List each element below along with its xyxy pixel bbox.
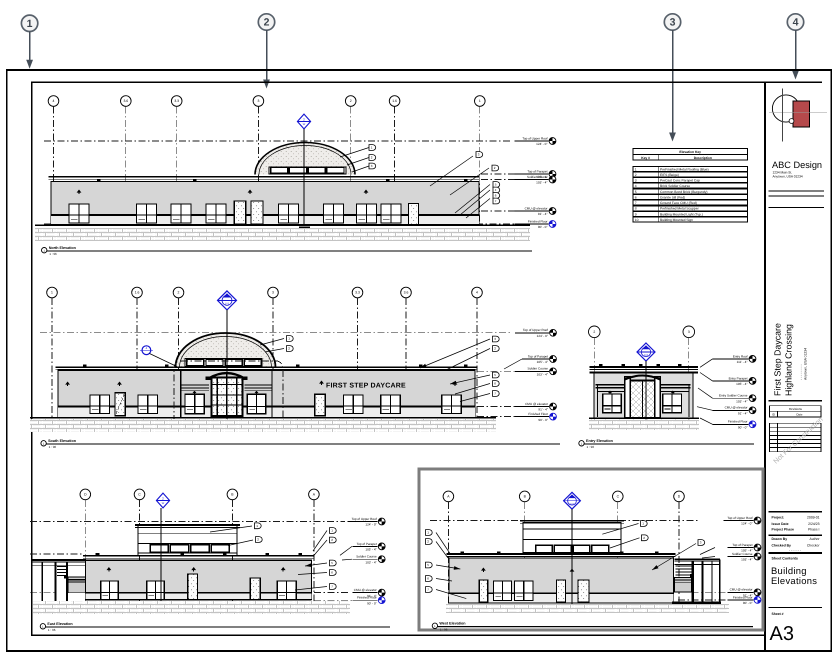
svg-text:CMU @ elevator: CMU @ elevator xyxy=(730,588,753,592)
svg-text:Sheet #: Sheet # xyxy=(772,612,784,616)
svg-text:Prefinished Metal Scupper: Prefinished Metal Scupper xyxy=(660,207,700,211)
svg-text:4: 4 xyxy=(793,17,799,29)
svg-text:1: 1 xyxy=(27,18,33,30)
svg-text:103' - 4": 103' - 4" xyxy=(536,181,547,185)
svg-text:90' - 0": 90' - 0" xyxy=(743,601,753,605)
svg-text:4: 4 xyxy=(476,291,478,295)
svg-text:Key #: Key # xyxy=(641,156,650,160)
svg-text:102: 102 xyxy=(570,503,575,506)
svg-text:5: 5 xyxy=(635,190,637,194)
svg-text:Anytown, USA 01234: Anytown, USA 01234 xyxy=(804,348,808,380)
svg-text:Highland Crossing: Highland Crossing xyxy=(784,324,794,396)
svg-text:Checker: Checker xyxy=(807,543,820,547)
svg-text:90' - 0": 90' - 0" xyxy=(538,418,548,422)
svg-text:105' - 4": 105' - 4" xyxy=(537,360,548,364)
svg-text:111' - 4": 111' - 4" xyxy=(737,360,748,364)
svg-text:PreFinished Metal Roofing (Blu: PreFinished Metal Roofing (Blue) xyxy=(660,167,709,171)
svg-text:91' - 4": 91' - 4" xyxy=(538,212,548,216)
svg-text:Top of Upper Roof: Top of Upper Roof xyxy=(727,516,752,520)
svg-text:Top of Parapet: Top of Parapet xyxy=(528,354,548,358)
svg-text:PreCast Conc Parapet Cap: PreCast Conc Parapet Cap xyxy=(660,179,700,183)
svg-text:1: 1 xyxy=(51,291,53,295)
svg-text:ABC Design: ABC Design xyxy=(772,160,822,170)
svg-text:1 : 96: 1 : 96 xyxy=(49,252,57,256)
svg-text:103' - 4": 103' - 4" xyxy=(741,558,752,562)
svg-text:124' - 0": 124' - 0" xyxy=(741,522,752,526)
svg-text:Project:: Project: xyxy=(772,515,785,519)
svg-text:3.6: 3.6 xyxy=(404,291,409,295)
svg-text:2: 2 xyxy=(264,17,270,29)
svg-text:2: 2 xyxy=(593,330,595,334)
svg-text:Building Mounted Sign: Building Mounted Sign xyxy=(660,218,693,222)
svg-text:West Elevation: West Elevation xyxy=(439,622,466,626)
svg-text:90' - 0": 90' - 0" xyxy=(738,426,748,430)
svg-text:90' - 0": 90' - 0" xyxy=(367,601,377,605)
svg-text:Entry Elevation: Entry Elevation xyxy=(586,439,614,443)
svg-text:Building Mounted Light (Typ.): Building Mounted Light (Typ.) xyxy=(660,212,703,216)
svg-text:Anytown, USA 01234: Anytown, USA 01234 xyxy=(773,175,803,179)
svg-text:1 : 96: 1 : 96 xyxy=(48,628,56,632)
svg-text:102: 102 xyxy=(644,354,649,357)
svg-text:3.3: 3.3 xyxy=(174,99,179,103)
svg-text:4: 4 xyxy=(53,99,55,103)
svg-text:124' - 0": 124' - 0" xyxy=(365,523,376,527)
svg-text:103' - 4": 103' - 4" xyxy=(365,560,376,564)
svg-text:Elevations: Elevations xyxy=(771,575,817,586)
svg-text:First Step Daycare: First Step Daycare xyxy=(773,323,783,396)
svg-text:Soldier Course: Soldier Course xyxy=(527,175,548,179)
svg-text:102: 102 xyxy=(225,303,230,306)
svg-text:Phase I: Phase I xyxy=(808,528,820,532)
svg-text:Project Phase: Project Phase xyxy=(772,528,795,532)
svg-text:Ground Face CMU (Red): Ground Face CMU (Red) xyxy=(660,201,697,205)
svg-text:9: 9 xyxy=(635,212,637,216)
svg-text:Issue Date: Issue Date xyxy=(772,522,789,526)
svg-text:Entry Roof: Entry Roof xyxy=(733,354,748,358)
svg-text:CMU @ elevator: CMU @ elevator xyxy=(354,588,377,592)
svg-text:Soldier Course: Soldier Course xyxy=(528,367,549,371)
svg-text:CMU @ elevator: CMU @ elevator xyxy=(525,402,548,406)
svg-text:1 : 96: 1 : 96 xyxy=(587,445,595,449)
svg-text:2: 2 xyxy=(178,291,180,295)
svg-text:Top of Upper Roof: Top of Upper Roof xyxy=(352,517,377,521)
svg-text:3: 3 xyxy=(272,291,274,295)
svg-text:91' - 4": 91' - 4" xyxy=(738,412,748,416)
svg-text:105' - 4": 105' - 4" xyxy=(736,382,747,386)
svg-text:Finished Floor: Finished Floor xyxy=(528,412,548,416)
svg-text:6: 6 xyxy=(635,195,637,199)
svg-text:Sheet Contents: Sheet Contents xyxy=(772,557,798,561)
svg-text:7: 7 xyxy=(635,201,637,205)
svg-text:103' - 4": 103' - 4" xyxy=(537,373,548,377)
svg-text:2009-01: 2009-01 xyxy=(807,515,820,519)
svg-text:Description: Description xyxy=(694,156,712,160)
svg-text:3.3: 3.3 xyxy=(355,291,360,295)
svg-text:124' - 0": 124' - 0" xyxy=(536,142,547,146)
svg-text:Entry Parapet: Entry Parapet xyxy=(729,376,748,380)
svg-text:10: 10 xyxy=(635,218,639,222)
svg-text:1.6: 1.6 xyxy=(392,99,397,103)
svg-text:East Elevation: East Elevation xyxy=(47,622,73,626)
svg-text:Finished Floor: Finished Floor xyxy=(357,596,377,600)
svg-text:Soldier Course: Soldier Course xyxy=(732,552,753,556)
svg-text:- - - - - - -: - - - - - - - xyxy=(789,548,801,552)
svg-text:CMU @ elevator: CMU @ elevator xyxy=(725,406,748,410)
svg-text:3: 3 xyxy=(257,99,259,103)
svg-text:Checked By: Checked By xyxy=(772,543,792,547)
svg-text:Top of Upper Roof: Top of Upper Roof xyxy=(522,136,547,140)
svg-text:Author: Author xyxy=(810,537,821,541)
svg-text:2: 2 xyxy=(635,173,637,177)
svg-text:Revisions: Revisions xyxy=(789,407,803,411)
svg-text:4: 4 xyxy=(635,184,637,188)
svg-text:Soldier Course: Soldier Course xyxy=(356,555,377,559)
svg-text:1 : 96: 1 : 96 xyxy=(49,445,57,449)
svg-text:124' - 0": 124' - 0" xyxy=(537,334,548,338)
svg-text:Entry Soldier Course: Entry Soldier Course xyxy=(719,394,748,398)
svg-text:90' - 0": 90' - 0" xyxy=(538,225,548,229)
svg-text:FIRST STEP DAYCARE: FIRST STEP DAYCARE xyxy=(326,383,406,390)
svg-text:Finished Floor: Finished Floor xyxy=(528,219,548,223)
svg-text:EIFS (Beige): EIFS (Beige) xyxy=(660,173,679,177)
svg-text:Brick Soldier Course: Brick Soldier Course xyxy=(660,184,690,188)
svg-text:2: 2 xyxy=(350,99,352,103)
svg-text:Granite Sill (Red): Granite Sill (Red) xyxy=(660,195,685,199)
svg-text:105' - 4": 105' - 4" xyxy=(365,548,376,552)
svg-text:Top of Parapet: Top of Parapet xyxy=(527,169,547,173)
svg-text:Top of Upper Roof: Top of Upper Roof xyxy=(523,328,548,332)
svg-text:Finished Floor: Finished Floor xyxy=(733,595,753,599)
svg-text:1: 1 xyxy=(635,167,637,171)
svg-text:103' - 4": 103' - 4" xyxy=(736,399,747,403)
svg-text:3: 3 xyxy=(670,17,676,29)
svg-text:1.6: 1.6 xyxy=(135,291,140,295)
svg-text:2/24/23: 2/24/23 xyxy=(808,522,819,526)
svg-text:North Elevation: North Elevation xyxy=(49,246,77,250)
svg-text:Drawn By: Drawn By xyxy=(772,537,788,541)
svg-text:3: 3 xyxy=(635,179,637,183)
svg-text:3.6: 3.6 xyxy=(123,99,128,103)
svg-text:A3: A3 xyxy=(770,623,794,645)
svg-text:8: 8 xyxy=(635,207,637,211)
svg-text:Top of Parapet: Top of Parapet xyxy=(357,542,377,546)
svg-text:3: 3 xyxy=(688,330,690,334)
svg-text:Elevation Key: Elevation Key xyxy=(679,150,701,154)
svg-text:Common Bond Brick (Burgundy): Common Bond Brick (Burgundy) xyxy=(660,190,707,194)
svg-text:South Elevation: South Elevation xyxy=(48,439,77,443)
svg-text:- - - - - - - -: - - - - - - - - xyxy=(799,364,803,380)
svg-text:Top of Parapet: Top of Parapet xyxy=(732,543,752,547)
svg-text:Date: Date xyxy=(796,413,802,417)
svg-text:Finished Floor: Finished Floor xyxy=(728,420,748,424)
svg-text:CMU @ elevator: CMU @ elevator xyxy=(525,206,548,210)
svg-text:1: 1 xyxy=(479,99,481,103)
svg-text:ID: ID xyxy=(772,413,775,417)
